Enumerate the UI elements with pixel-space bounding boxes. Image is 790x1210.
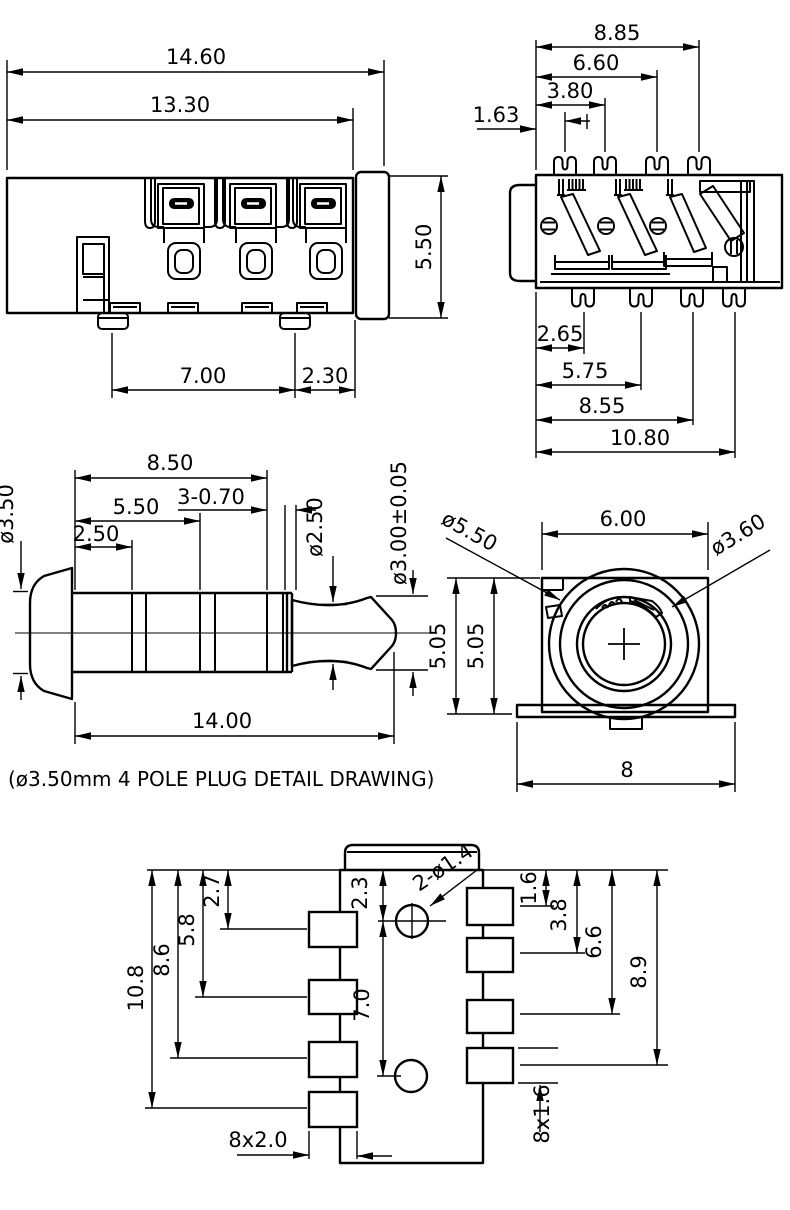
pad [467, 938, 513, 972]
hole-crosshairs [377, 903, 446, 1076]
dim-grooves: 3-0.70 [177, 485, 245, 509]
dim-pin1: 1.63 [473, 103, 520, 127]
pad [309, 1092, 357, 1127]
dim-pad-l2: 5.8 [175, 913, 199, 946]
dim-pad-l1: 2.7 [200, 874, 224, 907]
dim-lower-pin3: 8.55 [579, 394, 626, 418]
pad [309, 1042, 357, 1077]
pad [467, 888, 513, 925]
center-cross [608, 628, 640, 660]
dim-pad-r1: 1.6 [517, 871, 541, 904]
spring-contact-2 [223, 179, 289, 279]
dim-neck-dia: ø2.50 [303, 497, 327, 557]
dim-pin2: 3.80 [547, 79, 594, 103]
jack-front-view: ø5.50 6.00 ø3.60 5.05 5.05 8 [426, 506, 770, 792]
dim-pad-r2: 3.8 [547, 898, 571, 931]
jack-bezel [356, 172, 389, 319]
pad [467, 1000, 513, 1033]
internal-block [77, 237, 109, 313]
dim-pad-pitch: 7.00 [180, 364, 227, 388]
dim-sleeve-dia: ø3.50 [0, 484, 18, 544]
spring-contact-3 [293, 179, 346, 279]
technical-drawing-sheet: 14.60 13.30 5.50 7.00 2.30 [0, 0, 790, 1210]
dim-pad-edge: 2.30 [302, 364, 349, 388]
dim-ring1: 2.50 [73, 522, 120, 546]
internal-contact-1 [541, 179, 613, 274]
jack-front-dimensions [446, 522, 770, 792]
plug-detail-view: 8.50 3-0.70 5.50 2.50 ø3.50 ø2.50 ø3.00±… [0, 451, 434, 791]
dim-front-width: 6.00 [600, 507, 647, 531]
dim-height-b: 5.05 [464, 623, 488, 670]
dim-flange-width: 8 [620, 758, 633, 782]
pcb-footprint-view: 2.7 5.8 8.6 10.8 2.3 7.0 2-ø1.4 1.6 3.8 … [124, 839, 668, 1163]
plug-caption: (ø3.50mm 4 POLE PLUG DETAIL DRAWING) [8, 767, 434, 791]
dim-ring2: 5.50 [113, 495, 160, 519]
dim-pad-l4: 10.8 [124, 965, 148, 1012]
jack-side-view: 14.60 13.30 5.50 7.00 2.30 [7, 45, 448, 398]
dim-tip-dia: ø3.00±0.05 [387, 461, 411, 585]
smd-pads-side [98, 303, 327, 329]
dim-pin3: 6.60 [573, 51, 620, 75]
drawing-canvas: 14.60 13.30 5.50 7.00 2.30 [0, 0, 790, 1210]
footprint-dimensions [145, 870, 668, 1159]
dim-total-length: 14.00 [192, 709, 252, 733]
top-fork-terminals [554, 157, 710, 175]
dim-bezel-dia: ø5.50 [438, 506, 502, 556]
plug-dimensions [13, 470, 428, 744]
dim-body-width: 13.30 [150, 93, 210, 117]
dim-body-height: 5.50 [412, 224, 436, 271]
dim-pad-width-note: 8x2.0 [228, 1128, 287, 1152]
dim-hole-dia: ø3.60 [706, 509, 769, 560]
jack-contacts-view: 8.85 6.60 3.80 1.63 2.65 5.75 8.55 10.80 [473, 21, 782, 458]
right-pads [467, 888, 513, 1083]
dim-lower-pin4: 10.80 [610, 426, 670, 450]
dim-lower-pin1: 2.65 [537, 322, 584, 346]
dim-pad-r3: 6.6 [582, 925, 606, 958]
barrel-end [510, 185, 536, 281]
dim-hole-pitch: 7.0 [350, 988, 374, 1021]
bottom-fork-terminals [572, 288, 745, 307]
pad [467, 1048, 513, 1083]
dim-overall-width: 14.60 [166, 45, 226, 69]
dim-pin4: 8.85 [594, 21, 641, 45]
dim-hole-offset: 2.3 [348, 876, 372, 909]
dim-lower-pin2: 5.75 [562, 359, 609, 383]
dim-pad-height-note: 8x1.6 [530, 1084, 554, 1143]
dim-height-a: 5.05 [426, 623, 450, 670]
dim-sleeve-length: 8.50 [147, 451, 194, 475]
dim-pad-l3: 8.6 [150, 943, 174, 976]
dim-pad-r4: 8.9 [627, 955, 651, 988]
spring-contact-1 [151, 179, 217, 279]
jack-side-dimensions [7, 60, 448, 398]
pad [309, 912, 357, 947]
